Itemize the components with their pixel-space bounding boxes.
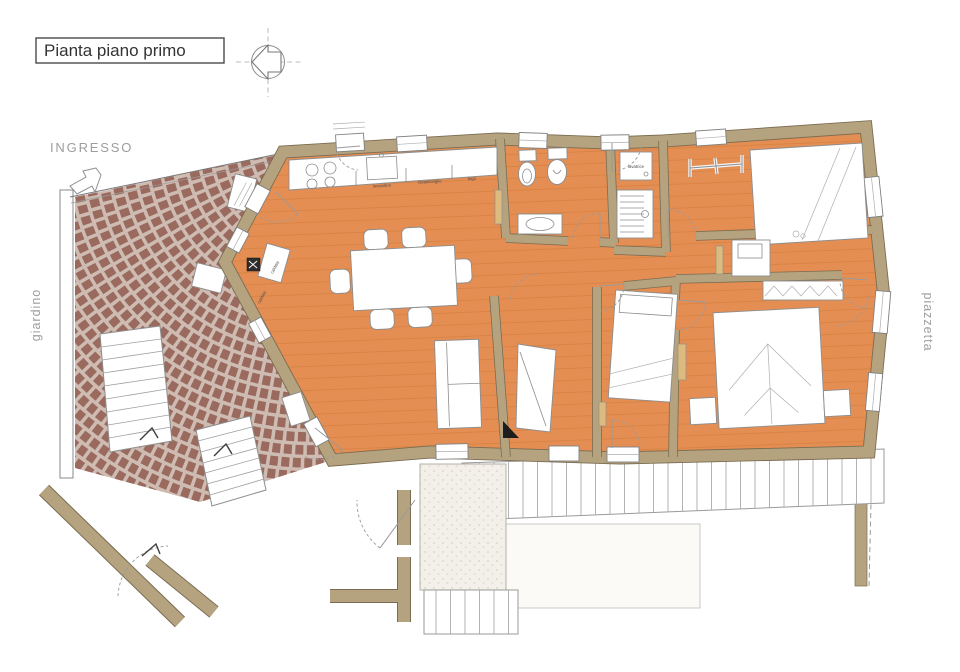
floor-plan-drawing: lavandino lavastoviglie frigo caldaia ca… bbox=[0, 0, 960, 672]
landing bbox=[420, 464, 506, 590]
floor-plan-page: lavandino lavastoviglie frigo caldaia ca… bbox=[0, 0, 960, 672]
square-label: piazzetta bbox=[921, 292, 935, 351]
window bbox=[519, 133, 548, 149]
sofa bbox=[434, 339, 481, 428]
chair bbox=[329, 269, 350, 294]
terrace-stairs-upper bbox=[100, 326, 172, 452]
toilet bbox=[548, 148, 568, 185]
washer-label: lavatrice bbox=[628, 164, 645, 169]
bed-double-north bbox=[750, 143, 868, 245]
window bbox=[865, 372, 882, 411]
wardrobe bbox=[763, 281, 843, 300]
fridge-label: frigo bbox=[468, 176, 477, 181]
dresser bbox=[732, 240, 770, 276]
radiator bbox=[495, 190, 502, 224]
lower-steps bbox=[424, 590, 518, 634]
lower-terrace bbox=[506, 524, 700, 608]
nightstand bbox=[823, 389, 850, 416]
dining-table bbox=[351, 245, 458, 310]
nightstand bbox=[689, 397, 716, 424]
window bbox=[696, 129, 727, 146]
garden-retaining-wall bbox=[60, 190, 73, 478]
laundry-room: lavatrice bbox=[617, 152, 653, 238]
chair bbox=[363, 229, 388, 250]
window bbox=[436, 444, 468, 460]
shower bbox=[617, 190, 653, 238]
bedroom-single bbox=[608, 290, 677, 402]
window bbox=[872, 290, 891, 333]
window bbox=[397, 135, 428, 152]
sink-label: lavandino bbox=[373, 182, 392, 188]
entrance-label: INGRESSO bbox=[50, 140, 133, 155]
bidet bbox=[519, 150, 537, 186]
radiator bbox=[678, 344, 686, 380]
radiator bbox=[599, 402, 606, 426]
radiator bbox=[716, 246, 723, 274]
hall-wardrobe bbox=[516, 344, 556, 432]
window bbox=[601, 135, 629, 150]
plan-title: Pianta piano primo bbox=[44, 41, 186, 60]
chair bbox=[408, 307, 433, 328]
window bbox=[607, 447, 639, 462]
bathroom-sink bbox=[518, 214, 562, 234]
bed-single bbox=[608, 290, 677, 402]
chair bbox=[370, 309, 395, 330]
corridor-door bbox=[549, 446, 579, 461]
garden-label: giardino bbox=[29, 289, 43, 341]
chair bbox=[401, 227, 426, 248]
